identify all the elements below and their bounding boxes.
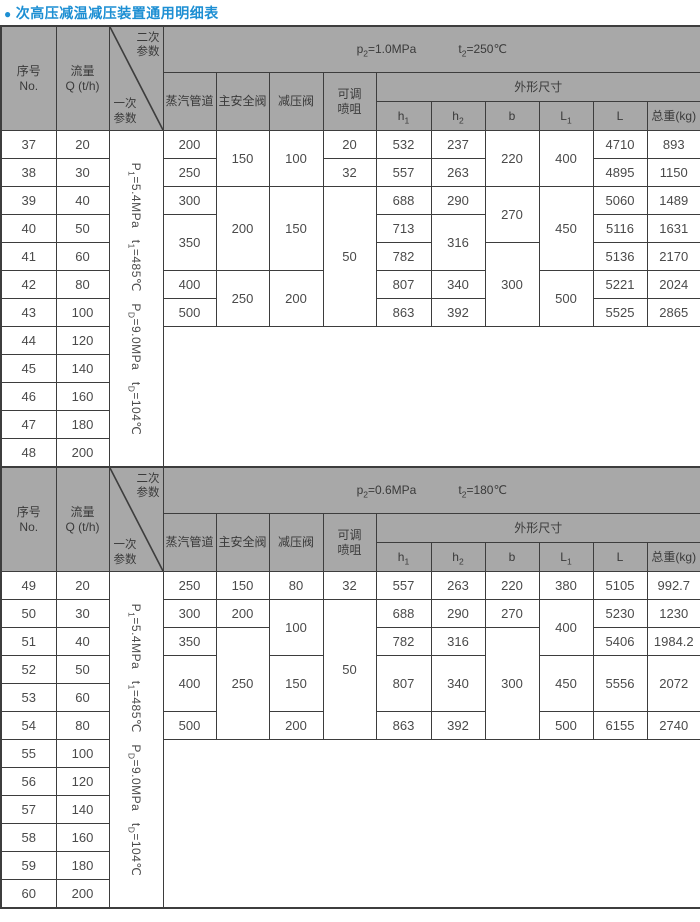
table-cell: 150 xyxy=(216,131,269,187)
table-cell: 713 xyxy=(376,215,431,243)
condition-header: p2=0.6MPa t2=180℃ xyxy=(163,467,700,514)
table-cell: 200 xyxy=(56,439,109,468)
table-cell: 450 xyxy=(539,187,593,271)
table-cell: 380 xyxy=(539,572,593,600)
table-row: 50303002001005068829027040052301230 xyxy=(1,600,700,628)
table-cell: 80 xyxy=(56,271,109,299)
table-cell: 42 xyxy=(1,271,56,299)
primary-params-cell: P1=5.4MPa t1=485℃ PD=9.0MPa tD=104℃ xyxy=(109,572,163,909)
col-header-nozzle: 可调 喷咀 xyxy=(323,73,376,131)
table-cell: 80 xyxy=(269,572,323,600)
secondary-params-label: 二次 参数 xyxy=(137,31,160,60)
table-cell: 140 xyxy=(56,355,109,383)
table-cell: 60 xyxy=(1,880,56,909)
table-row: 3720P1=5.4MPa t1=485℃ PD=9.0MPa tD=104℃2… xyxy=(1,131,700,159)
primary-params-text: P1=5.4MPa t1=485℃ PD=9.0MPa tD=104℃ xyxy=(129,162,143,435)
table-cell: 51 xyxy=(1,628,56,656)
table-2-body: 4920P1=5.4MPa t1=485℃ PD=9.0MPa tD=104℃2… xyxy=(1,572,700,909)
table-cell: 47 xyxy=(1,411,56,439)
page-title: ●次高压减温减压装置通用明细表 xyxy=(0,0,700,25)
col-header-h2: h2 xyxy=(431,543,485,572)
table-cell: 5556 xyxy=(593,656,647,712)
table-cell: 46 xyxy=(1,383,56,411)
table-cell: 500 xyxy=(539,271,593,327)
table-cell: 57 xyxy=(1,796,56,824)
table-cell: 300 xyxy=(163,187,216,215)
table-row: 4920P1=5.4MPa t1=485℃ PD=9.0MPa tD=104℃2… xyxy=(1,572,700,600)
table-cell: 6155 xyxy=(593,712,647,740)
table-cell: 20 xyxy=(323,131,376,159)
table-cell: 1489 xyxy=(647,187,700,215)
table-cell: 1984.2 xyxy=(647,628,700,656)
table-cell: 250 xyxy=(216,271,269,327)
col-header-main-safety-valve: 主安全阀 xyxy=(216,514,269,572)
table-cell: 340 xyxy=(431,656,485,712)
col-header-steam-pipe: 蒸汽管道 xyxy=(163,514,216,572)
table-cell: 500 xyxy=(163,712,216,740)
condition-values: p2=1.0MPa t2=250℃ xyxy=(164,42,700,57)
table-cell: 100 xyxy=(269,131,323,187)
header-row-condition: 序号 No. 流量 Q (t/h) 二次 参数 一次 参数 p2=0.6MPa … xyxy=(1,467,700,514)
table-cell: 5230 xyxy=(593,600,647,628)
table-cell: 44 xyxy=(1,327,56,355)
table-cell: 100 xyxy=(56,740,109,768)
table-cell: 180 xyxy=(56,852,109,880)
table-cell: 782 xyxy=(376,243,431,271)
col-header-L1: L1 xyxy=(539,543,593,572)
condition-values: p2=0.6MPa t2=180℃ xyxy=(164,483,700,498)
table-cell: 5406 xyxy=(593,628,647,656)
primary-params-label: 一次 参数 xyxy=(114,538,137,567)
col-header-h2: h2 xyxy=(431,102,485,131)
table-cell: 2865 xyxy=(647,299,700,327)
table-cell: 688 xyxy=(376,187,431,215)
col-header-L1: L1 xyxy=(539,102,593,131)
diagonal-header-cell: 二次 参数 一次 参数 xyxy=(109,467,163,572)
table-cell: 350 xyxy=(163,215,216,271)
table-cell: 100 xyxy=(269,600,323,656)
header-row-condition: 序号 No. 流量 Q (t/h) 二次 参数 一次 参数 p2=1.0MPa … xyxy=(1,26,700,73)
table-cell: 20 xyxy=(56,572,109,600)
table-cell: 5525 xyxy=(593,299,647,327)
secondary-pressure: p2=0.6MPa xyxy=(357,483,417,498)
table-cell: 30 xyxy=(56,600,109,628)
table-cell: 37 xyxy=(1,131,56,159)
table-cell: 180 xyxy=(56,411,109,439)
table-cell: 50 xyxy=(323,600,376,740)
table-cell: 40 xyxy=(56,628,109,656)
table-cell: 50 xyxy=(323,187,376,327)
table-cell: 120 xyxy=(56,327,109,355)
table-cell: 120 xyxy=(56,768,109,796)
page-title-text: 次高压减温减压装置通用明细表 xyxy=(16,5,219,21)
table-cell: 500 xyxy=(163,299,216,327)
empty-region xyxy=(163,327,700,468)
col-header-main-safety-valve: 主安全阀 xyxy=(216,73,269,131)
table-cell: 350 xyxy=(163,628,216,656)
empty-region xyxy=(163,740,700,909)
col-header-no: 序号 No. xyxy=(1,467,56,572)
table-cell: 290 xyxy=(431,187,485,215)
table-cell: 80 xyxy=(56,712,109,740)
table-cell: 41 xyxy=(1,243,56,271)
secondary-temperature: t2=180℃ xyxy=(458,483,507,498)
table-cell: 59 xyxy=(1,852,56,880)
table-cell: 200 xyxy=(269,271,323,327)
table-cell: 2740 xyxy=(647,712,700,740)
table-cell: 200 xyxy=(56,880,109,909)
table-cell: 49 xyxy=(1,572,56,600)
table-cell: 1150 xyxy=(647,159,700,187)
table-cell: 200 xyxy=(269,712,323,740)
table-cell: 50 xyxy=(1,600,56,628)
table-cell: 557 xyxy=(376,572,431,600)
table-cell: 200 xyxy=(216,600,269,628)
col-header-weight: 总重(kg) xyxy=(647,102,700,131)
table-cell: 450 xyxy=(539,656,593,712)
table-cell: 1230 xyxy=(647,600,700,628)
col-header-flow: 流量 Q (t/h) xyxy=(56,467,109,572)
col-header-L: L xyxy=(593,102,647,131)
table-cell: 56 xyxy=(1,768,56,796)
table-cell: 150 xyxy=(269,656,323,712)
table-cell: 32 xyxy=(323,159,376,187)
table-1-body: 3720P1=5.4MPa t1=485℃ PD=9.0MPa tD=104℃2… xyxy=(1,131,700,468)
table-cell: 782 xyxy=(376,628,431,656)
table-cell: 400 xyxy=(163,271,216,299)
table-cell: 5116 xyxy=(593,215,647,243)
table-cell: 270 xyxy=(485,600,539,628)
table-cell: 32 xyxy=(323,572,376,600)
table-cell: 400 xyxy=(539,600,593,656)
table-cell: 5105 xyxy=(593,572,647,600)
table-cell: 220 xyxy=(485,572,539,600)
table-cell: 290 xyxy=(431,600,485,628)
table-cell: 893 xyxy=(647,131,700,159)
table-cell: 2024 xyxy=(647,271,700,299)
table-cell: 150 xyxy=(216,572,269,600)
table-cell: 392 xyxy=(431,712,485,740)
table-cell: 200 xyxy=(163,131,216,159)
table-cell: 263 xyxy=(431,159,485,187)
table-cell: 863 xyxy=(376,712,431,740)
table-cell: 557 xyxy=(376,159,431,187)
table-cell: 160 xyxy=(56,383,109,411)
table-cell: 54 xyxy=(1,712,56,740)
col-header-h1: h1 xyxy=(376,543,431,572)
col-header-no: 序号 No. xyxy=(1,26,56,131)
secondary-pressure: p2=1.0MPa xyxy=(357,42,417,57)
col-header-reducing-valve: 减压阀 xyxy=(269,73,323,131)
table-cell: 5221 xyxy=(593,271,647,299)
table-cell: 2072 xyxy=(647,656,700,712)
table-cell: 150 xyxy=(269,187,323,271)
table-cell: 4895 xyxy=(593,159,647,187)
table-cell: 1631 xyxy=(647,215,700,243)
col-header-weight: 总重(kg) xyxy=(647,543,700,572)
condition-header: p2=1.0MPa t2=250℃ xyxy=(163,26,700,73)
table-cell: 160 xyxy=(56,824,109,852)
table-cell: 50 xyxy=(56,656,109,684)
table-row: 44120 xyxy=(1,327,700,355)
table-cell: 20 xyxy=(56,131,109,159)
table-cell: 300 xyxy=(485,628,539,740)
primary-params-text: P1=5.4MPa t1=485℃ PD=9.0MPa tD=104℃ xyxy=(129,603,143,876)
table-cell: 40 xyxy=(56,187,109,215)
secondary-temperature: t2=250℃ xyxy=(458,42,507,57)
table-cell: 300 xyxy=(485,243,539,327)
table-cell: 5136 xyxy=(593,243,647,271)
table-cell: 55 xyxy=(1,740,56,768)
table-cell: 100 xyxy=(56,299,109,327)
table-cell: 45 xyxy=(1,355,56,383)
spec-table-1: 序号 No. 流量 Q (t/h) 二次 参数 一次 参数 p2=1.0MPa … xyxy=(0,25,700,468)
secondary-params-label: 二次 参数 xyxy=(137,472,160,501)
diagonal-header-cell: 二次 参数 一次 参数 xyxy=(109,26,163,131)
table-cell: 316 xyxy=(431,215,485,271)
table-cell: 40 xyxy=(1,215,56,243)
table-cell: 4710 xyxy=(593,131,647,159)
table-cell: 500 xyxy=(539,712,593,740)
table-cell: 250 xyxy=(163,572,216,600)
table-cell: 316 xyxy=(431,628,485,656)
table-cell: 392 xyxy=(431,299,485,327)
table-cell: 2170 xyxy=(647,243,700,271)
col-header-reducing-valve: 减压阀 xyxy=(269,514,323,572)
primary-params-cell: P1=5.4MPa t1=485℃ PD=9.0MPa tD=104℃ xyxy=(109,131,163,468)
table-cell: 532 xyxy=(376,131,431,159)
col-header-L: L xyxy=(593,543,647,572)
table-row: 39403002001505068829027045050601489 xyxy=(1,187,700,215)
col-header-steam-pipe: 蒸汽管道 xyxy=(163,73,216,131)
table-cell: 220 xyxy=(485,131,539,187)
col-header-outline-dims: 外形尺寸 xyxy=(376,73,700,102)
table-cell: 400 xyxy=(163,656,216,712)
spec-table-2: 序号 No. 流量 Q (t/h) 二次 参数 一次 参数 p2=0.6MPa … xyxy=(0,466,700,909)
table-cell: 992.7 xyxy=(647,572,700,600)
table-cell: 340 xyxy=(431,271,485,299)
table-cell: 43 xyxy=(1,299,56,327)
table-cell: 263 xyxy=(431,572,485,600)
table-cell: 60 xyxy=(56,243,109,271)
table-cell: 807 xyxy=(376,271,431,299)
primary-params-label: 一次 参数 xyxy=(114,97,137,126)
table-cell: 250 xyxy=(216,628,269,740)
table-cell: 688 xyxy=(376,600,431,628)
table-row: 55100 xyxy=(1,740,700,768)
table-row: 38302503255726348951150 xyxy=(1,159,700,187)
table-cell: 30 xyxy=(56,159,109,187)
table-cell: 38 xyxy=(1,159,56,187)
table-cell: 48 xyxy=(1,439,56,468)
table-cell: 807 xyxy=(376,656,431,712)
col-header-flow: 流量 Q (t/h) xyxy=(56,26,109,131)
table-cell: 58 xyxy=(1,824,56,852)
table-cell: 270 xyxy=(485,187,539,243)
col-header-b: b xyxy=(485,102,539,131)
col-header-h1: h1 xyxy=(376,102,431,131)
col-header-nozzle: 可调 喷咀 xyxy=(323,514,376,572)
table-cell: 400 xyxy=(539,131,593,187)
table-cell: 237 xyxy=(431,131,485,159)
col-header-b: b xyxy=(485,543,539,572)
col-header-outline-dims: 外形尺寸 xyxy=(376,514,700,543)
table-cell: 53 xyxy=(1,684,56,712)
table-cell: 863 xyxy=(376,299,431,327)
table-cell: 60 xyxy=(56,684,109,712)
table-cell: 200 xyxy=(216,187,269,271)
bullet-icon: ● xyxy=(4,7,12,21)
page: ●次高压减温减压装置通用明细表 序号 No. 流量 Q (t/h) 二次 参数 … xyxy=(0,0,700,922)
table-cell: 39 xyxy=(1,187,56,215)
table-cell: 300 xyxy=(163,600,216,628)
table-cell: 140 xyxy=(56,796,109,824)
table-cell: 52 xyxy=(1,656,56,684)
table-cell: 5060 xyxy=(593,187,647,215)
table-cell: 250 xyxy=(163,159,216,187)
table-cell: 50 xyxy=(56,215,109,243)
